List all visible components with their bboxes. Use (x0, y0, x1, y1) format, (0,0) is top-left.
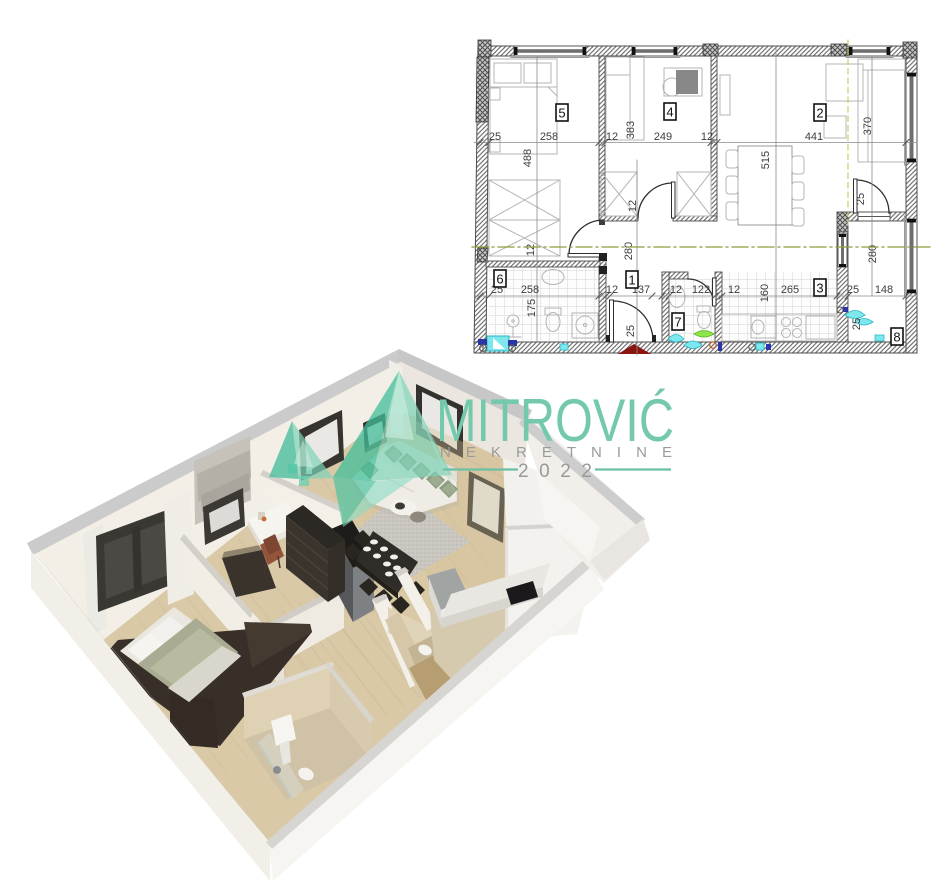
svg-text:12: 12 (627, 200, 639, 212)
svg-text:4: 4 (666, 105, 673, 120)
svg-text:249: 249 (654, 131, 672, 143)
svg-text:25: 25 (851, 318, 863, 330)
svg-text:175: 175 (526, 299, 538, 317)
svg-text:441: 441 (805, 131, 823, 143)
svg-text:370: 370 (862, 117, 874, 135)
svg-text:8: 8 (893, 330, 900, 345)
svg-text:122: 122 (692, 284, 710, 296)
svg-text:12: 12 (701, 131, 713, 143)
svg-text:3: 3 (816, 281, 823, 296)
svg-text:258: 258 (540, 131, 558, 143)
svg-text:1: 1 (628, 273, 635, 288)
svg-text:7: 7 (674, 315, 681, 330)
svg-text:12: 12 (606, 131, 618, 143)
svg-text:6: 6 (496, 272, 503, 287)
svg-text:12: 12 (606, 284, 618, 296)
svg-text:25: 25 (625, 325, 637, 337)
svg-text:258: 258 (521, 284, 539, 296)
svg-text:12: 12 (728, 284, 740, 296)
svg-text:25: 25 (847, 284, 859, 296)
svg-text:148: 148 (875, 284, 893, 296)
svg-text:515: 515 (760, 151, 772, 169)
svg-text:25: 25 (855, 193, 867, 205)
svg-text:265: 265 (781, 284, 799, 296)
svg-text:280: 280 (623, 242, 635, 260)
svg-text:5: 5 (558, 106, 565, 121)
svg-text:12: 12 (670, 284, 682, 296)
svg-text:12: 12 (525, 244, 537, 256)
svg-text:488: 488 (522, 149, 534, 167)
svg-text:383: 383 (625, 121, 637, 139)
svg-text:2: 2 (816, 106, 823, 121)
svg-text:25: 25 (489, 131, 501, 143)
svg-text:160: 160 (759, 284, 771, 302)
